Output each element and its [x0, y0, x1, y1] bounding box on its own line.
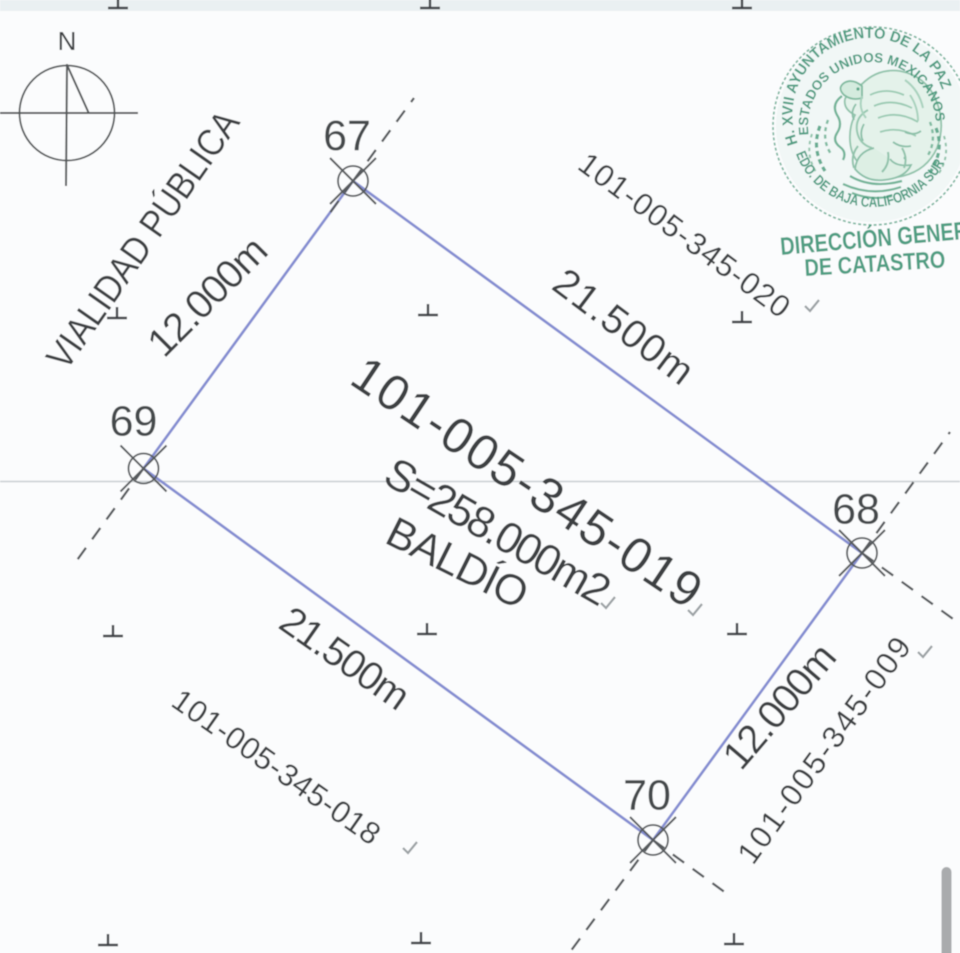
svg-text:70: 70 [623, 772, 671, 820]
svg-text:69: 69 [110, 398, 158, 446]
svg-text:67: 67 [323, 112, 371, 160]
svg-text:N: N [58, 26, 77, 56]
svg-text:68: 68 [832, 486, 880, 534]
